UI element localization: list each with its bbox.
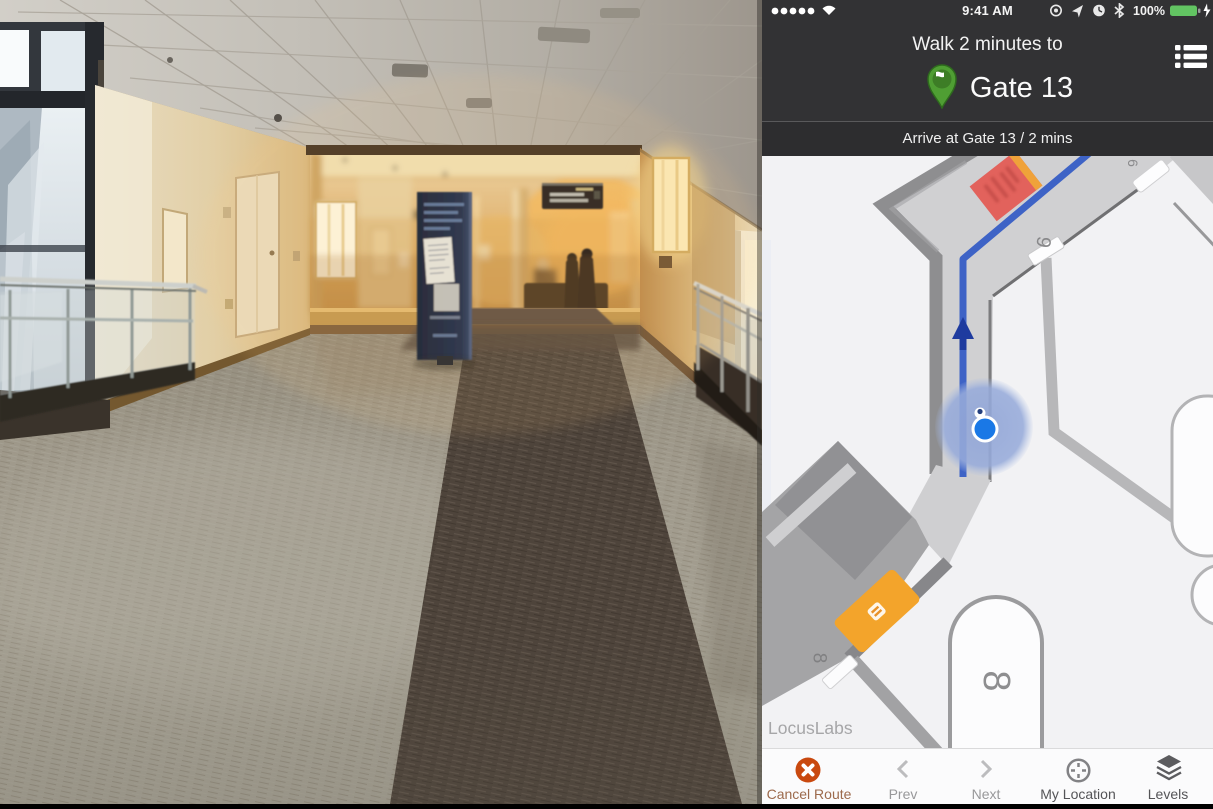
svg-text:8: 8 — [809, 653, 830, 664]
svg-text:8: 8 — [975, 670, 1017, 691]
svg-text:100%: 100% — [1133, 4, 1165, 18]
svg-text:6: 6 — [1125, 159, 1141, 167]
svg-text:LocusLabs: LocusLabs — [768, 718, 853, 738]
